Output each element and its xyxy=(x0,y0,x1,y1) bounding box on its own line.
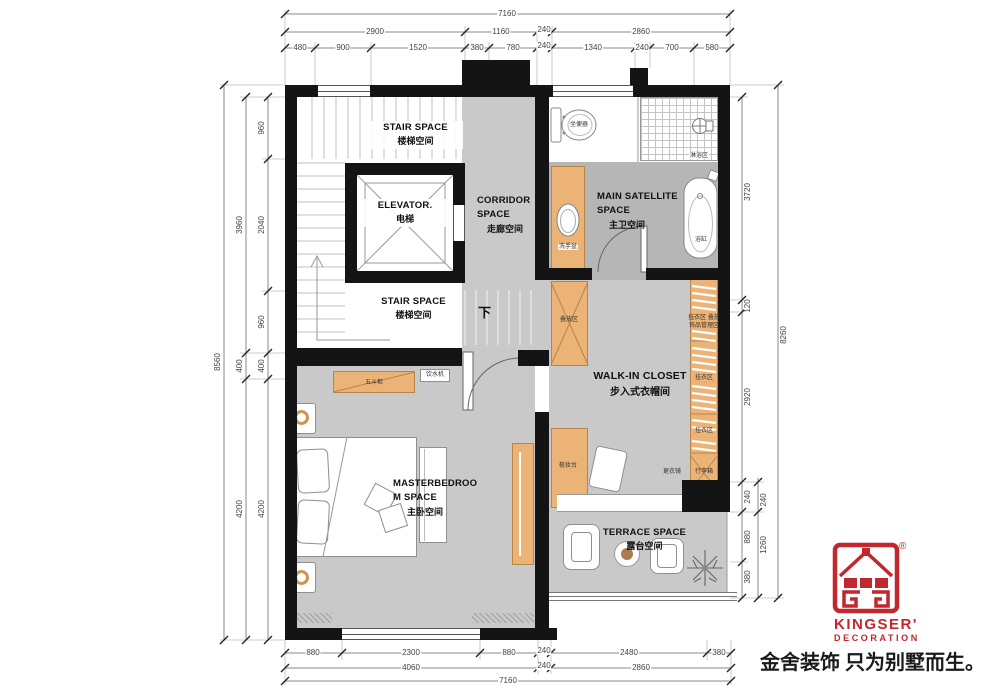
dim-label: 580 xyxy=(704,44,719,52)
pillow-1 xyxy=(296,448,330,494)
dim-label: 240 xyxy=(744,489,752,504)
window-stairs xyxy=(318,85,370,97)
dim-label: 2480 xyxy=(619,649,639,657)
dim-label: 880 xyxy=(744,529,752,544)
wall-closet-terrace-right xyxy=(682,480,730,512)
wall-bedroom-top-right xyxy=(518,350,549,366)
dim-label: 2920 xyxy=(744,387,752,407)
dim-label: 240 xyxy=(536,662,551,670)
closet-en: WALK-IN CLOSET xyxy=(570,369,710,385)
elevator-wall-top xyxy=(345,163,465,175)
corridor-closet-link-floor xyxy=(535,280,549,352)
dim-label: 2300 xyxy=(401,649,421,657)
floor-plan: STAIR SPACE 楼梯空间 ELEVATOR. 电梯 CORRIDOR S… xyxy=(0,0,1000,700)
dim-label: 1520 xyxy=(408,44,428,52)
dim-label: 2860 xyxy=(631,664,651,672)
bathtub-label: 浴缸 xyxy=(695,237,707,243)
terrace-railing xyxy=(549,592,737,604)
dim-label: 4200 xyxy=(236,499,244,519)
hang-zone-a1-label: 挂衣区 叠放 xyxy=(688,315,720,321)
dim-label: 240 xyxy=(760,492,768,507)
bedroom-en1: MASTERBEDROO xyxy=(393,477,488,491)
mirror-label: 更衣镜 xyxy=(663,469,681,475)
tv-cabinet xyxy=(512,443,534,565)
hang-zone-b-label: 挂衣区 xyxy=(695,375,713,381)
bedroom-en2: M SPACE xyxy=(393,491,488,505)
dim-label: 3960 xyxy=(236,215,244,235)
down-mark: 下 xyxy=(478,302,491,321)
dim-label: 1260 xyxy=(760,535,768,555)
wall-bath-closet-left xyxy=(549,268,592,280)
window-bathroom xyxy=(553,85,633,97)
terrace-zh: 露台空间 xyxy=(582,540,707,554)
dresser-label: 五斗柜 xyxy=(365,380,383,386)
label-elevator: ELEVATOR. 电梯 xyxy=(361,199,449,227)
wall-bath-closet-right xyxy=(646,268,730,280)
shower-label: 淋浴区 xyxy=(689,153,709,159)
registered-mark: ® xyxy=(899,541,906,552)
dim-label: 700 xyxy=(664,44,679,52)
dim-label: 2860 xyxy=(631,28,651,36)
label-stair-space-lower: STAIR SPACE 楼梯空间 xyxy=(366,295,461,323)
dim-label: 780 xyxy=(505,44,520,52)
corridor-en2: SPACE xyxy=(477,208,547,222)
dim-label: 480 xyxy=(292,44,307,52)
elevator-wall-bottom xyxy=(345,271,465,283)
dim-bottom-total: 7160 xyxy=(498,677,518,685)
bath-en2: SPACE xyxy=(597,204,692,218)
dim-label: 120 xyxy=(744,298,752,313)
brand-division: DECORATION xyxy=(834,633,920,643)
label-walk-in-closet: WALK-IN CLOSET 步入式衣帽间 xyxy=(570,369,710,400)
kingser-logo-mark xyxy=(830,540,910,620)
bath-vanity-counter xyxy=(551,166,585,271)
luggage-label: 行李箱 xyxy=(695,469,713,475)
dim-left-total: 8560 xyxy=(214,352,222,372)
dim-label: 240 xyxy=(536,26,551,34)
dim-label: 240 xyxy=(634,44,649,52)
terrace-threshold xyxy=(557,494,682,512)
dim-label: 880 xyxy=(305,649,320,657)
fold-cabinet xyxy=(551,281,588,366)
dim-label: 1340 xyxy=(583,44,603,52)
dim-label: 900 xyxy=(335,44,350,52)
corridor-zh: 走廊空间 xyxy=(487,223,547,237)
bedroom-zh: 主卧空间 xyxy=(407,506,488,520)
hang-zone-a2-label: 饰品管理区 xyxy=(689,323,719,329)
wall-under-stairs xyxy=(285,348,462,366)
dim-label: 2040 xyxy=(258,215,266,235)
shower-area xyxy=(640,97,718,161)
label-main-satellite: MAIN SATELLITE SPACE 主卫空间 xyxy=(597,190,692,232)
dim-label: 380 xyxy=(711,649,726,657)
wall-bedroom-closet xyxy=(535,412,549,512)
fold-zone-label: 叠放区 xyxy=(560,317,578,323)
tv-cabinet-handle xyxy=(519,452,521,556)
corridor-en1: CORRIDOR xyxy=(477,194,547,208)
dim-label: 240 xyxy=(536,647,551,655)
stair-upper-en: STAIR SPACE xyxy=(368,121,463,135)
closet-zh: 步入式衣帽间 xyxy=(570,385,710,400)
label-master-bedroom: MASTERBEDROO M SPACE 主卧空间 xyxy=(393,477,488,519)
dim-label: 960 xyxy=(258,314,266,329)
elevator-zh: 电梯 xyxy=(361,213,449,227)
dim-label: 4200 xyxy=(258,499,266,519)
bath-en1: MAIN SATELLITE xyxy=(597,190,692,204)
curtain-right xyxy=(472,613,534,623)
wall-corridor-bath xyxy=(535,85,549,280)
hang-zone-c-label: 挂衣区 xyxy=(695,428,713,434)
dim-label: 380 xyxy=(469,44,484,52)
wall-right xyxy=(718,85,730,512)
toilet-label: 坐便器 xyxy=(570,122,588,128)
label-terrace: TERRACE SPACE 露台空间 xyxy=(582,526,707,554)
dim-label: 4060 xyxy=(401,664,421,672)
pillow-2 xyxy=(296,499,330,545)
stair-treads-left xyxy=(297,163,345,332)
bath-zh: 主卫空间 xyxy=(609,219,692,233)
elevator-en: ELEVATOR. xyxy=(361,199,449,213)
dim-label: 380 xyxy=(744,569,752,584)
dim-label: 240 xyxy=(536,42,551,50)
wall-stub-corridor-top xyxy=(462,60,530,85)
stair-lower-zh: 楼梯空间 xyxy=(366,309,461,323)
water-dispenser-label: 饮水机 xyxy=(426,372,444,378)
dim-label: 960 xyxy=(258,120,266,135)
brand-name: KINGSER' xyxy=(834,616,918,633)
dim-right-total: 8260 xyxy=(780,325,788,345)
wall-stub-bath-top xyxy=(630,68,648,85)
dressing-table-label: 梳妆台 xyxy=(559,463,577,469)
dim-label: 880 xyxy=(501,649,516,657)
wall-bedroom-terrace xyxy=(535,512,549,628)
elevator-wall-left xyxy=(345,163,357,283)
brand-slogan: 金舍装饰 只为别墅而生。 xyxy=(760,646,985,675)
dim-label: 400 xyxy=(236,358,244,373)
terrace-en: TERRACE SPACE xyxy=(582,526,707,540)
dim-label: 1160 xyxy=(491,28,510,36)
stair-lower-en: STAIR SPACE xyxy=(366,295,461,309)
label-stair-space-upper: STAIR SPACE 楼梯空间 xyxy=(368,121,463,149)
basin-label: 洗手盆 xyxy=(558,244,578,250)
dim-label: 2900 xyxy=(365,28,385,36)
dim-label: 400 xyxy=(258,358,266,373)
dim-top-total: 7160 xyxy=(497,10,517,18)
stair-upper-zh: 楼梯空间 xyxy=(368,135,463,149)
label-corridor: CORRIDOR SPACE 走廊空间 xyxy=(477,194,547,236)
elevator-door-gap xyxy=(453,205,465,241)
dim-label: 3720 xyxy=(744,182,752,202)
window-bedroom xyxy=(342,628,480,640)
